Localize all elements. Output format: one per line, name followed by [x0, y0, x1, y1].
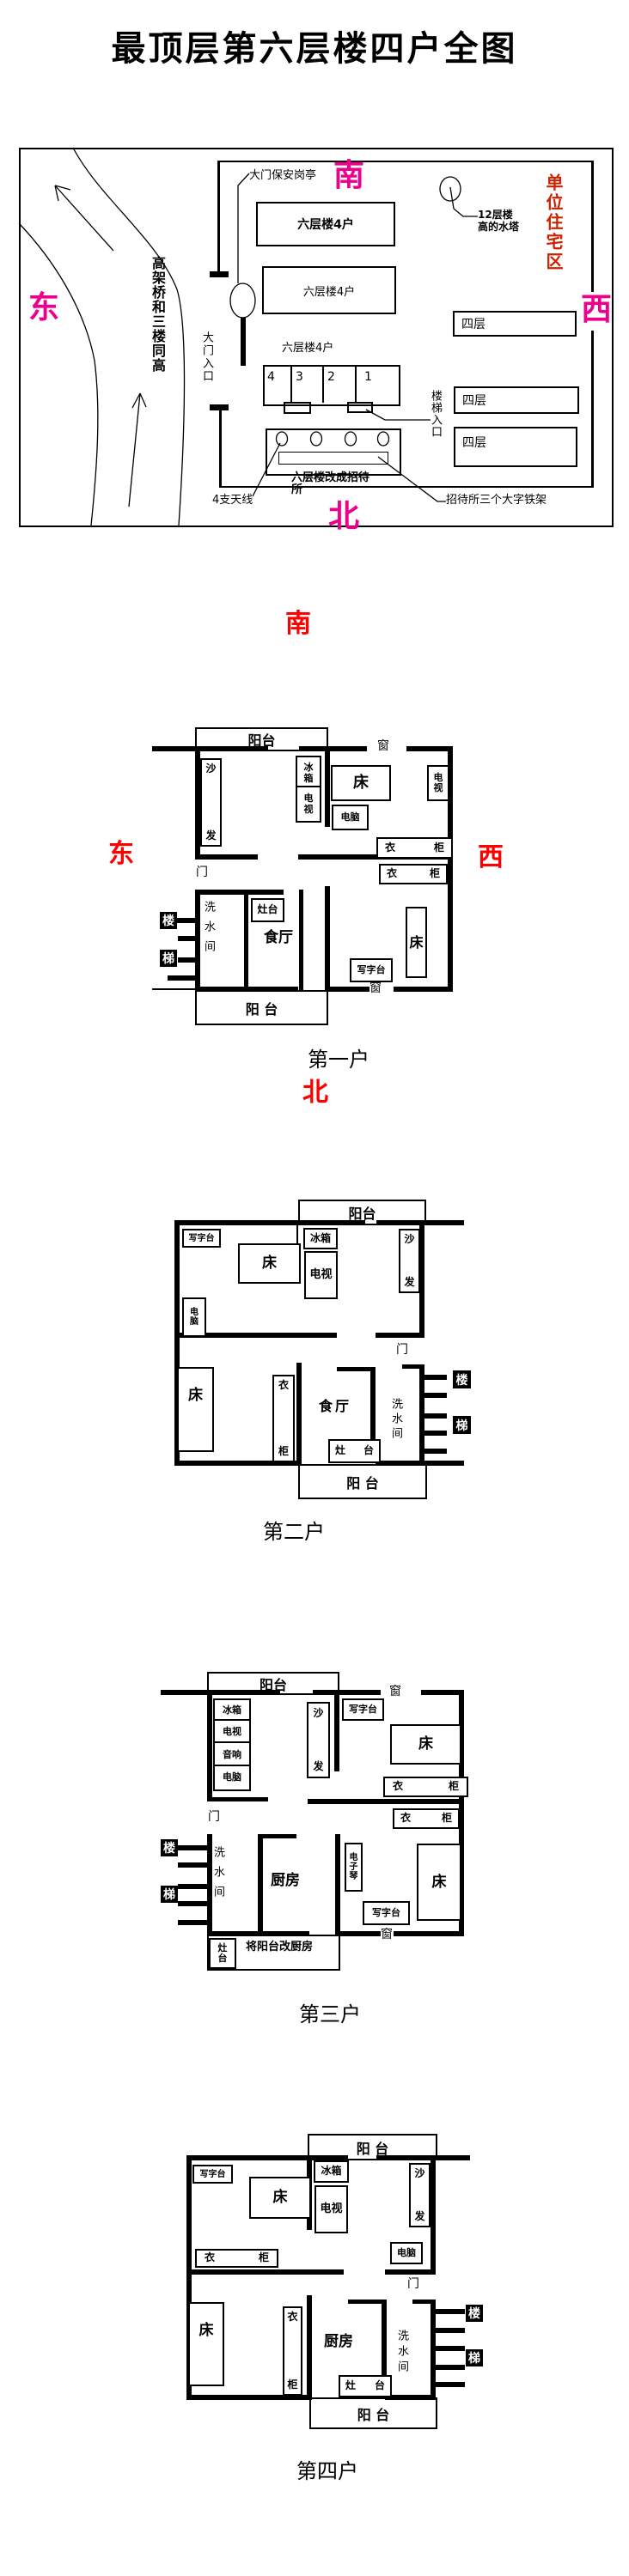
wardrobe-char: 柜: [449, 1781, 459, 1792]
stair-glyph: 梯: [160, 950, 177, 967]
window-label: 窗: [389, 1685, 401, 1698]
kitchen-label: 厨房: [271, 1873, 300, 1890]
wall: [161, 1690, 280, 1695]
wall: [376, 2155, 470, 2160]
section-label-first: 第一户: [308, 1049, 369, 1070]
furniture-bed: 床: [177, 1367, 214, 1452]
furniture-desk: 写字台: [363, 1901, 410, 1925]
computer-label: 电脑: [341, 812, 360, 823]
fridge-char: 箱: [304, 774, 314, 784]
iron-frame-leader-line: [378, 457, 446, 501]
wall: [195, 890, 284, 895]
furniture-tv: 电视: [314, 2185, 348, 2233]
wardrobe-char: 衣: [385, 842, 395, 854]
stair-step: [436, 2346, 465, 2351]
stair-step: [436, 2382, 465, 2387]
wall: [325, 746, 330, 827]
antenna-leader-line: [253, 443, 280, 496]
wardrobe-char: 衣: [205, 2252, 215, 2263]
wall: [313, 1690, 381, 1695]
furniture-fridge: 冰箱: [314, 2160, 349, 2183]
balcony-box: 阳 台: [195, 990, 328, 1025]
wardrobe-char: 衣: [387, 868, 397, 879]
road-edge: [73, 148, 185, 526]
stair-glyph: 梯: [466, 2349, 483, 2366]
bed-label: 床: [199, 2304, 214, 2339]
furniture-computer: 电脑: [332, 805, 369, 830]
water-tower-needle: [450, 187, 454, 209]
plan1-compass-south: 南: [285, 611, 311, 637]
stove-char: 灶: [345, 2380, 356, 2391]
door-label: 门: [396, 1343, 408, 1357]
wardrobe-char: 柜: [278, 1446, 289, 1457]
balcony-label: 阳 台: [346, 1472, 379, 1492]
wardrobe-char: 衣: [287, 2312, 297, 2323]
furniture-sofa: 沙 发: [409, 2163, 431, 2227]
booth-leader-line: [238, 173, 249, 283]
furniture-tv: 电视: [304, 1251, 338, 1299]
wall: [308, 1799, 464, 1804]
furniture-wardrobe: 衣 柜: [383, 1777, 468, 1797]
stair-glyph: 梯: [161, 1886, 178, 1903]
balcony-label: 阳 台: [246, 998, 278, 1018]
sofa-char: 发: [313, 1761, 323, 1772]
wardrobe-char: 柜: [287, 2379, 297, 2391]
wall: [394, 1931, 464, 1936]
wardrobe-char: 柜: [430, 868, 440, 879]
furniture-stove: 灶 台: [328, 1439, 381, 1463]
stair-glyph: 楼: [161, 1839, 178, 1856]
washroom-label: 洗水间: [212, 1846, 223, 1905]
furniture-fridge: 冰箱: [303, 1228, 338, 1249]
sofa-char: 发: [205, 830, 216, 841]
section-label-second: 第二户: [263, 1522, 325, 1542]
hostel-note: 所: [291, 484, 302, 497]
water-tower-label: 12层楼: [478, 210, 513, 222]
bed-label: 床: [409, 935, 423, 951]
water-tower-label: 高的水塔: [478, 222, 519, 234]
tv-char: 电: [304, 793, 314, 804]
furniture-computer: 电脑: [213, 1765, 251, 1791]
fridge-char: 冰: [304, 762, 314, 773]
computer-label: 电脑: [397, 2248, 416, 2258]
washroom-label: 洗水间: [203, 901, 214, 960]
fridge-label: 冰箱: [223, 1705, 241, 1716]
furniture-bed: 床: [238, 1243, 301, 1284]
door-label: 门: [208, 1810, 220, 1824]
wall: [335, 1834, 340, 1936]
dining-room-label: 食厅: [264, 930, 293, 947]
furniture-tv: 电 视: [427, 765, 449, 801]
wall: [299, 890, 303, 992]
furniture-stove: 灶台: [251, 898, 284, 922]
computer-char: 电: [190, 1308, 198, 1317]
desk-label: 写字台: [200, 2170, 226, 2179]
stove-char: 台: [375, 2380, 385, 2391]
furniture-bed: 床: [417, 1844, 461, 1921]
bed-label: 床: [432, 1874, 447, 1891]
balcony-label: 阳 台: [357, 2137, 389, 2158]
furniture-wardrobe: 衣 柜: [283, 2306, 302, 2396]
furniture-wardrobe: 衣 柜: [379, 864, 448, 884]
furniture-tv: 电 视: [296, 786, 321, 823]
furniture-bed: 床: [188, 2302, 224, 2386]
wall: [258, 1834, 263, 1936]
wall: [244, 890, 248, 992]
furniture-sofa: 沙 发: [307, 1702, 330, 1778]
furniture-bed: 床: [331, 765, 391, 801]
wall: [299, 746, 367, 751]
furniture-electronic-piano: 电 子 琴: [345, 1843, 363, 1892]
wall: [152, 988, 195, 990]
residential-zone-label: 单位住宅区: [545, 173, 562, 272]
furniture-desk: 写字台: [350, 958, 393, 982]
sofa-char: 发: [404, 1277, 414, 1288]
balcony-label: 阳 台: [357, 2403, 390, 2424]
tv-label: 电视: [309, 1269, 332, 1281]
hostel-note: 六层楼改成招待: [291, 472, 369, 485]
bed-label: 床: [262, 1255, 277, 1272]
bed-label: 床: [418, 1736, 433, 1753]
furniture-computer: 电 脑: [182, 1297, 206, 1337]
stair-step: [424, 1449, 447, 1454]
window-label: 窗: [381, 1928, 393, 1941]
plan1-compass-west: 西: [478, 845, 504, 871]
wall: [385, 2269, 436, 2275]
fridge-label: 冰箱: [321, 2166, 341, 2177]
furniture-bed: 床: [249, 2177, 311, 2219]
section-label-fourth: 第四户: [296, 2461, 358, 2482]
antenna-icon: [277, 432, 288, 446]
wall: [348, 2300, 384, 2304]
scanned-floorplan-document: 最顶层第六层楼四户全图 六层楼4户 六层楼4户 六层楼4户 4 3 2 1 四层…: [0, 0, 629, 2576]
wall: [412, 2300, 436, 2304]
furniture-sofa: 沙 发: [399, 1229, 420, 1293]
antennas-label: 4支天线: [212, 495, 253, 507]
wall: [258, 1834, 296, 1838]
bed-label: 床: [353, 775, 369, 792]
tv-label: 电视: [320, 2203, 342, 2215]
fridge-label: 冰箱: [310, 1233, 331, 1244]
wall: [207, 1797, 268, 1801]
furniture-desk: 写字台: [182, 1229, 221, 1248]
stair-step: [178, 1845, 207, 1850]
wardrobe-char: 柜: [259, 2252, 269, 2263]
wall: [152, 746, 268, 751]
iron-frame-label: 招待所三个大字铁架: [446, 495, 547, 507]
wardrobe-char: 衣: [400, 1813, 411, 1824]
wall: [207, 1690, 212, 1801]
security-booth-icon: [230, 283, 255, 318]
road-arrow: [55, 185, 113, 251]
gate-entrance-label: 大门入口: [201, 331, 212, 383]
road-arrow: [129, 393, 146, 507]
piano-char: 子: [350, 1862, 358, 1872]
stair-step: [424, 1375, 447, 1380]
wall: [174, 1220, 365, 1225]
kitchen-conversion-note: 将阳台改厨房: [246, 1941, 313, 1954]
stair-step: [424, 1431, 447, 1436]
door-label: 门: [196, 866, 208, 879]
wall: [337, 1367, 370, 1371]
wall: [186, 2269, 344, 2275]
computer-char: 脑: [190, 1317, 198, 1327]
plan1-compass-east: 东: [108, 841, 134, 867]
stair-step: [178, 1884, 207, 1889]
piano-char: 琴: [350, 1872, 358, 1881]
stair-glyph: 楼: [453, 1370, 471, 1388]
furniture-bed: 床: [406, 907, 427, 978]
bed-label: 床: [188, 1369, 203, 1404]
wardrobe-char: 衣: [393, 1781, 403, 1792]
stair-step: [178, 1901, 207, 1906]
wall: [325, 886, 330, 992]
stair-step: [168, 975, 198, 981]
furniture-wardrobe: 衣 柜: [272, 1375, 295, 1462]
section-label-third: 第三户: [299, 2004, 361, 2025]
furniture-bed: 床: [390, 1724, 461, 1765]
desk-label: 写字台: [357, 965, 386, 975]
stereo-label: 音响: [223, 1750, 241, 1760]
wardrobe-char: 柜: [434, 842, 444, 854]
window-label: 窗: [369, 981, 382, 995]
overpass-label: 高架桥和三楼同高: [150, 256, 164, 373]
desk-label: 写字台: [349, 1704, 377, 1715]
site-map-drawing: [19, 148, 612, 526]
stair-step: [424, 1413, 447, 1419]
wall: [406, 746, 453, 751]
plan1-compass-north: 北: [302, 1080, 328, 1106]
wall: [431, 2155, 436, 2273]
furniture-wardrobe: 衣 柜: [195, 2249, 278, 2268]
balcony-box: 阳 台: [309, 2397, 437, 2429]
stair-glyph: 梯: [453, 1416, 471, 1434]
sofa-char: 沙: [313, 1708, 323, 1719]
antenna-icon: [378, 432, 389, 446]
page-title: 最顶层第六层楼四户全图: [0, 29, 629, 69]
stair-glyph: 楼: [466, 2305, 483, 2322]
dining-room-label: 食厅: [319, 1399, 351, 1414]
sofa-char: 沙: [414, 2168, 424, 2179]
map-compass-west: 西: [581, 294, 612, 325]
stair-step: [176, 918, 198, 923]
stove-char: 台: [363, 1445, 374, 1456]
antenna-icon: [311, 432, 322, 446]
wardrobe-char: 柜: [442, 1813, 452, 1824]
washroom-label: 洗水间: [390, 1398, 401, 1442]
tv-char: 视: [304, 805, 314, 815]
road-edge: [19, 223, 98, 526]
wall: [338, 1931, 381, 1936]
piano-char: 电: [350, 1853, 358, 1862]
tv-char: 视: [434, 783, 443, 793]
wall: [376, 1333, 424, 1338]
stair-step: [178, 957, 198, 963]
stove-char: 灶: [335, 1445, 345, 1456]
sofa-char: 发: [414, 2211, 424, 2222]
stair-step: [178, 1862, 207, 1868]
furniture-desk: 写字台: [342, 1698, 384, 1721]
antenna-icon: [345, 432, 357, 446]
balcony-box: 阳 台: [298, 1464, 427, 1499]
wall: [325, 987, 369, 992]
wall: [402, 1364, 419, 1369]
wall: [296, 1363, 302, 1466]
map-compass-north: 北: [328, 501, 359, 532]
map-compass-south: 南: [333, 160, 364, 191]
wall: [195, 854, 258, 860]
computer-label: 电脑: [223, 1772, 241, 1783]
furniture-desk: 写字台: [192, 2165, 233, 2184]
wall: [307, 2295, 312, 2400]
furniture-computer: 电脑: [390, 2242, 423, 2264]
sofa-char: 沙: [404, 1234, 414, 1245]
washroom-label: 洗水间: [396, 2330, 407, 2376]
door-label: 门: [407, 2277, 419, 2291]
water-tower-leader-line: [454, 209, 478, 216]
furniture-wardrobe: 衣 柜: [393, 1808, 460, 1829]
desk-label: 写字台: [189, 1234, 215, 1243]
stair-step: [178, 936, 198, 941]
map-compass-east: 东: [28, 292, 59, 323]
sofa-char: 沙: [205, 763, 216, 775]
stair-step: [436, 2328, 465, 2333]
desk-label: 写字台: [372, 1908, 400, 1918]
stove-char: 台: [218, 1953, 228, 1964]
wall: [394, 987, 453, 992]
wardrobe-char: 衣: [278, 1380, 289, 1391]
furniture-wardrobe: 衣 柜: [376, 837, 453, 859]
stair-entrance-label: 楼梯入口: [430, 390, 441, 438]
tv-label: 电视: [223, 1727, 241, 1737]
window-label: 窗: [377, 739, 389, 753]
furniture-stove: 灶 台: [209, 1938, 236, 1969]
furniture-sofa: 沙 发: [200, 758, 222, 847]
gate-booth-label: 大门保安岗亭: [249, 170, 316, 183]
furniture-stove: 灶 台: [339, 2375, 392, 2397]
stair-step: [424, 1393, 447, 1398]
kitchen-label: 厨房: [324, 2334, 353, 2351]
stair-step: [178, 1920, 207, 1925]
stair-step: [436, 2365, 465, 2370]
stair-step: [436, 2309, 465, 2314]
stair-entrance-leader-line: [366, 410, 431, 420]
stair-glyph: 楼: [160, 912, 177, 929]
stove-label: 灶台: [257, 904, 278, 915]
wall: [334, 1690, 339, 1771]
wall: [421, 1690, 464, 1695]
bed-label: 床: [273, 2190, 288, 2206]
